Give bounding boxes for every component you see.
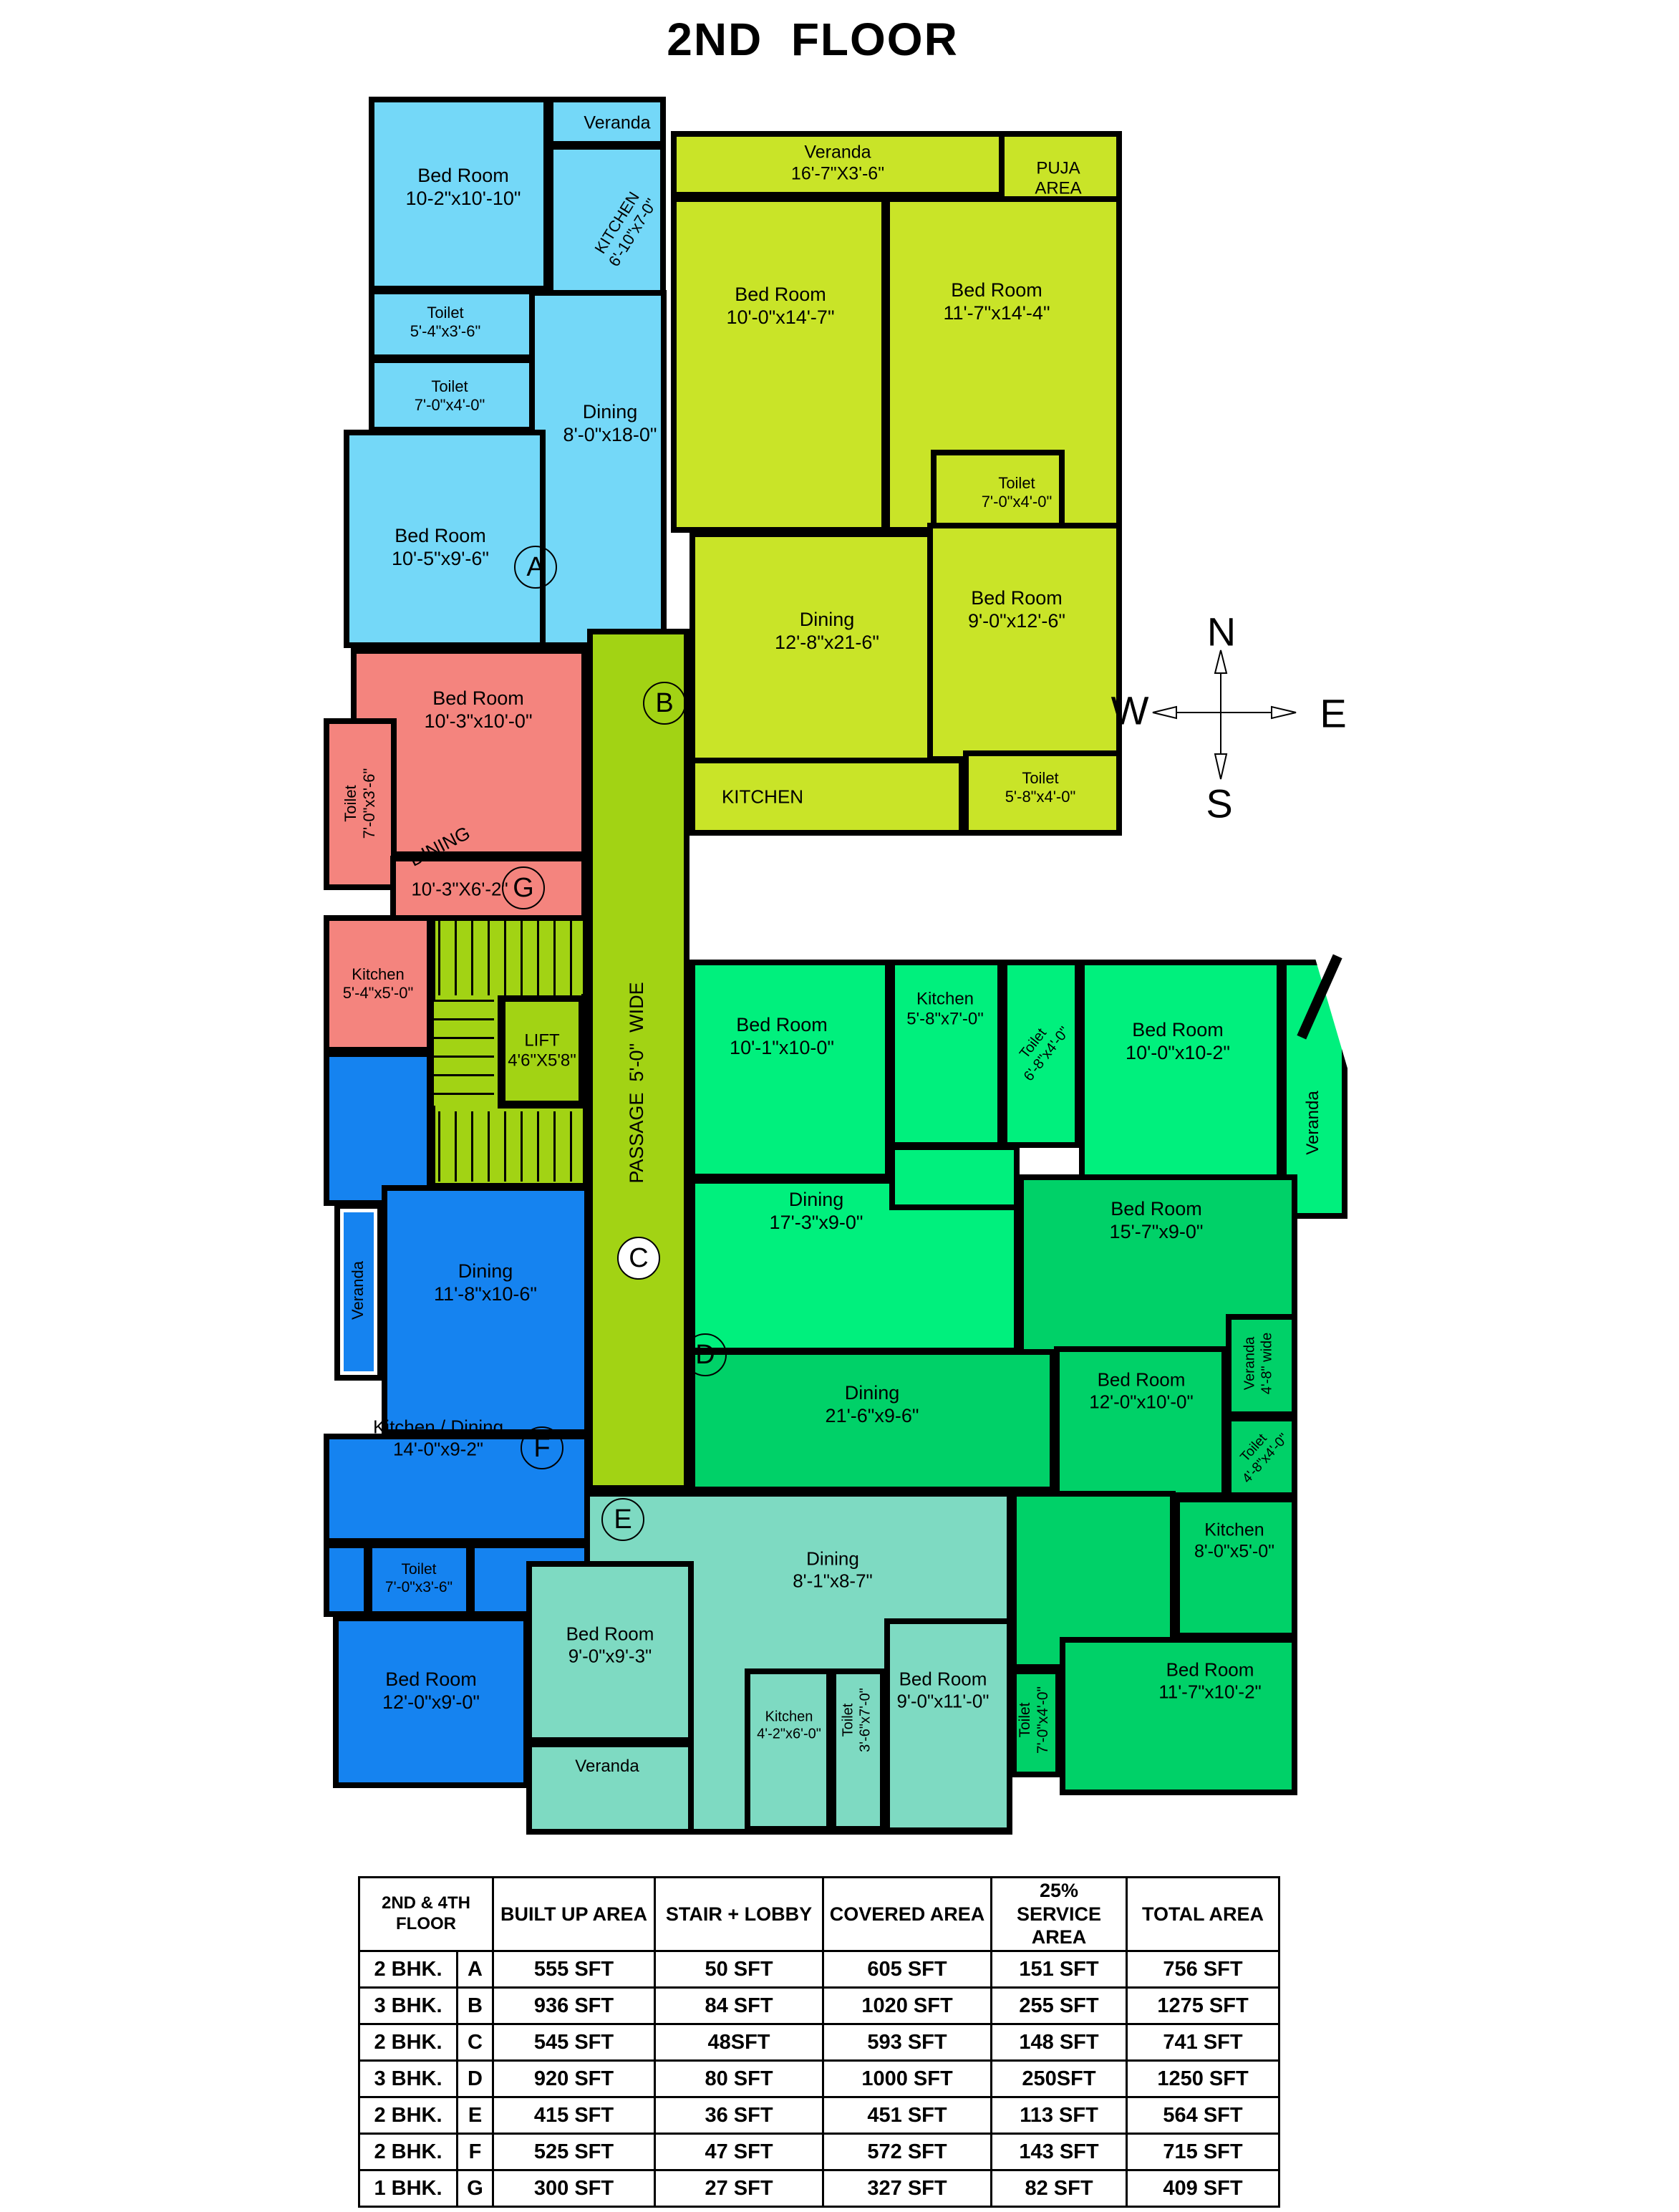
room-f-dining: [382, 1185, 590, 1435]
cell-service: 113 SFT: [992, 2097, 1127, 2134]
cell-service: 143 SFT: [992, 2134, 1127, 2170]
label-d-toilet2: Toilet 7'-0"x4'-0": [1017, 1686, 1053, 1754]
cell-built_up: 525 SFT: [493, 2134, 655, 2170]
cell-built_up: 300 SFT: [493, 2170, 655, 2207]
label-d-bed1: Bed Room 15'-7"x9-0": [1110, 1198, 1204, 1244]
room-d-kitchen: [1174, 1497, 1297, 1638]
floor-plan-canvas: 2ND FLOOR Bed Room 10-2"x10'-10"VerandaK…: [0, 0, 1679, 2212]
cell-total: 756 SFT: [1127, 1951, 1279, 1988]
cell-service: 82 SFT: [992, 2170, 1127, 2207]
cell-stair_lobby: 50 SFT: [655, 1951, 823, 1988]
cell-type: 3 BHK.: [359, 2061, 458, 2097]
room-e-kitchen: [745, 1668, 832, 1832]
room-b-bed3: [927, 523, 1122, 762]
label-a-toilet1: Toilet 5'-4"x3'-6": [410, 304, 481, 341]
unit-marker-d: D: [684, 1333, 727, 1376]
table-row-flat-c: 2 BHK.C545 SFT48SFT593 SFT148 SFT741 SFT: [359, 2024, 1279, 2061]
cell-type: 3 BHK.: [359, 1988, 458, 2024]
header-floor: 2ND & 4TH FLOOR: [359, 1878, 493, 1951]
table-header-row: 2ND & 4TH FLOOR BUILT UP AREA STAIR + LO…: [359, 1878, 1279, 1951]
label-g-kitchen: Kitchen 5'-4"x5'-0": [343, 965, 414, 1003]
label-e-bed2: Bed Room 9'-0"x11'-0": [896, 1668, 989, 1711]
cell-type: 2 BHK.: [359, 2134, 458, 2170]
cell-stair_lobby: 84 SFT: [655, 1988, 823, 2024]
label-e-kitchen: Kitchen 4'-2"x6'-0": [757, 1709, 821, 1742]
label-e-dining: Dining 8'-1"x8-7": [793, 1547, 873, 1591]
label-d-kitchen: Kitchen 8'-0"x5'-0": [1194, 1520, 1274, 1563]
cell-covered: 451 SFT: [823, 2097, 992, 2134]
label-lift: LIFT 4'6"X5'8": [508, 1031, 576, 1072]
label-c-veranda: Veranda: [1303, 1091, 1323, 1154]
table-row-flat-f: 2 BHK.F525 SFT47 SFT572 SFT143 SFT715 SF…: [359, 2134, 1279, 2170]
cell-flat: G: [458, 2170, 493, 2207]
label-f-bed: Bed Room 12'-0"x9'-0": [382, 1668, 480, 1714]
label-c-dining: Dining 17'-3"x9-0": [770, 1189, 863, 1235]
unit-marker-a: A: [514, 546, 557, 589]
cell-total: 741 SFT: [1127, 2024, 1279, 2061]
label-f-veranda: Veranda: [349, 1261, 367, 1320]
label-b-dining: Dining 12'-8"x21-6": [775, 609, 879, 655]
cell-covered: 327 SFT: [823, 2170, 992, 2207]
unit-marker-e: E: [601, 1498, 644, 1541]
label-a-bed2: Bed Room 10'-5"x9'-6": [392, 525, 489, 571]
cell-service: 148 SFT: [992, 2024, 1127, 2061]
unit-marker-c: C: [617, 1237, 660, 1280]
label-a-bed1: Bed Room 10-2"x10'-10": [406, 165, 521, 211]
label-g-toilet: Toilet 7'-0"x3'-6": [342, 768, 379, 839]
cell-built_up: 936 SFT: [493, 1988, 655, 2024]
compass-north-label: N: [1207, 609, 1236, 655]
table-row-flat-g: 1 BHK.G300 SFT27 SFT327 SFT82 SFT409 SFT: [359, 2170, 1279, 2207]
label-a-toilet2: Toilet 7'-0"x4'-0": [415, 377, 485, 415]
room-f-toilet0: [324, 1051, 432, 1206]
cell-built_up: 555 SFT: [493, 1951, 655, 1988]
cell-total: 715 SFT: [1127, 2134, 1279, 2170]
cell-stair_lobby: 48SFT: [655, 2024, 823, 2061]
label-f-toilet1: Toilet 7'-0"x3'-6": [385, 1561, 453, 1597]
room-stairs-upper: [438, 921, 581, 995]
cell-service: 255 SFT: [992, 1988, 1127, 2024]
header-covered-area: COVERED AREA: [823, 1878, 992, 1951]
cell-stair_lobby: 80 SFT: [655, 2061, 823, 2097]
unit-marker-f: F: [521, 1426, 563, 1469]
room-e-veranda: [526, 1742, 694, 1835]
label-b-puja: PUJA AREA: [1035, 159, 1081, 200]
cell-total: 564 SFT: [1127, 2097, 1279, 2134]
unit-marker-g: G: [502, 866, 545, 909]
room-c-bed1: [689, 960, 891, 1179]
table-row-flat-d: 3 BHK.D920 SFT80 SFT1000 SFT250SFT1250 S…: [359, 2061, 1279, 2097]
label-d-bed3: Bed Room 11'-7"x10'-2": [1158, 1658, 1262, 1702]
room-b-bed1: [671, 196, 887, 533]
compass-west-label: W: [1111, 687, 1149, 734]
cell-total: 1275 SFT: [1127, 1988, 1279, 2024]
room-stairs-lower: [438, 1111, 581, 1182]
label-d-dining: Dining 21'-6"x9-6": [826, 1382, 919, 1428]
header-service-area: 25% SERVICE AREA: [992, 1878, 1127, 1951]
cell-built_up: 415 SFT: [493, 2097, 655, 2134]
room-c-kitchen: [889, 960, 1003, 1148]
unit-marker-b: B: [643, 682, 686, 725]
cell-service: 250SFT: [992, 2061, 1127, 2097]
label-g-dining-dims: 10'-3"X6'-2": [411, 879, 508, 901]
cell-service: 151 SFT: [992, 1951, 1127, 1988]
cell-stair_lobby: 27 SFT: [655, 2170, 823, 2207]
table-row-flat-b: 3 BHK.B936 SFT84 SFT1020 SFT255 SFT1275 …: [359, 1988, 1279, 2024]
cell-covered: 605 SFT: [823, 1951, 992, 1988]
label-c-kitchen: Kitchen 5'-8"x7'-0": [906, 990, 984, 1030]
cell-flat: D: [458, 2061, 493, 2097]
room-e-bed2: [884, 1618, 1012, 1833]
cell-total: 409 SFT: [1127, 2170, 1279, 2207]
table-row-flat-e: 2 BHK.E415 SFT36 SFT451 SFT113 SFT564 SF…: [359, 2097, 1279, 2134]
label-b-toilet2: Toilet 5'-8"x4'-0": [1005, 769, 1076, 806]
cell-flat: A: [458, 1951, 493, 1988]
label-b-bed2: Bed Room 11'-7"x14'-4": [943, 279, 1050, 325]
cell-type: 2 BHK.: [359, 2097, 458, 2134]
label-c-bed1: Bed Room 10'-1"x10-0": [730, 1014, 834, 1060]
page-title: 2ND FLOOR: [644, 13, 981, 66]
cell-flat: C: [458, 2024, 493, 2061]
cell-flat: B: [458, 1988, 493, 2024]
cell-covered: 1020 SFT: [823, 1988, 992, 2024]
label-passage: PASSAGE 5'-0" WIDE: [626, 982, 649, 1183]
cell-covered: 572 SFT: [823, 2134, 992, 2170]
label-f-dining: Dining 11'-8"x10-6": [434, 1260, 537, 1306]
label-e-toilet: Toilet 3'-6"x7'-0": [840, 1688, 874, 1752]
label-d-veranda: Veranda 4'-8" wide: [1242, 1333, 1275, 1395]
label-b-veranda: Veranda 16'-7"X3'-6": [791, 143, 884, 185]
room-c-open: [889, 1144, 1020, 1210]
room-f-fill-a: [324, 1542, 369, 1617]
header-built-up-area: BUILT UP AREA: [493, 1878, 655, 1951]
cell-stair_lobby: 47 SFT: [655, 2134, 823, 2170]
table-row-flat-a: 2 BHK.A555 SFT50 SFT605 SFT151 SFT756 SF…: [359, 1951, 1279, 1988]
label-g-bed: Bed Room 10'-3"x10'-0": [424, 687, 532, 733]
label-b-kitchen: KITCHEN: [722, 786, 803, 808]
compass-south-label: S: [1206, 781, 1232, 827]
cell-total: 1250 SFT: [1127, 2061, 1279, 2097]
label-b-toilet1: Toilet 7'-0"x4'-0": [982, 474, 1053, 511]
cell-covered: 1000 SFT: [823, 2061, 992, 2097]
area-statement-table: 2ND & 4TH FLOOR BUILT UP AREA STAIR + LO…: [358, 1876, 1280, 2208]
cell-built_up: 545 SFT: [493, 2024, 655, 2061]
cell-stair_lobby: 36 SFT: [655, 2097, 823, 2134]
label-c-bed2: Bed Room 10'-0"x10-2": [1126, 1019, 1230, 1065]
cell-type: 2 BHK.: [359, 2024, 458, 2061]
label-e-bed1: Bed Room 9'-0"x9'-3": [566, 1623, 654, 1666]
cell-built_up: 920 SFT: [493, 2061, 655, 2097]
cell-covered: 593 SFT: [823, 2024, 992, 2061]
room-stairs-landing: [434, 1000, 494, 1106]
label-b-bed3: Bed Room 9'-0"x12'-6": [968, 587, 1065, 633]
header-total-area: TOTAL AREA: [1127, 1878, 1279, 1951]
label-a-dining: Dining 8'-0"x18-0": [563, 401, 657, 447]
cell-flat: F: [458, 2134, 493, 2170]
label-d-bed2: Bed Room 12'-0"x10'-0": [1089, 1368, 1193, 1412]
header-stair-lobby: STAIR + LOBBY: [655, 1878, 823, 1951]
label-a-veranda: Veranda: [584, 112, 650, 134]
label-f-kitchen: Kitchen / Dining 14'-0"x9-2": [373, 1416, 503, 1459]
compass-east-label: E: [1320, 690, 1346, 737]
cell-type: 1 BHK.: [359, 2170, 458, 2207]
cell-type: 2 BHK.: [359, 1951, 458, 1988]
label-b-bed1: Bed Room 10'-0"x14'-7": [726, 284, 834, 329]
label-e-veranda: Veranda: [575, 1757, 639, 1777]
cell-flat: E: [458, 2097, 493, 2134]
